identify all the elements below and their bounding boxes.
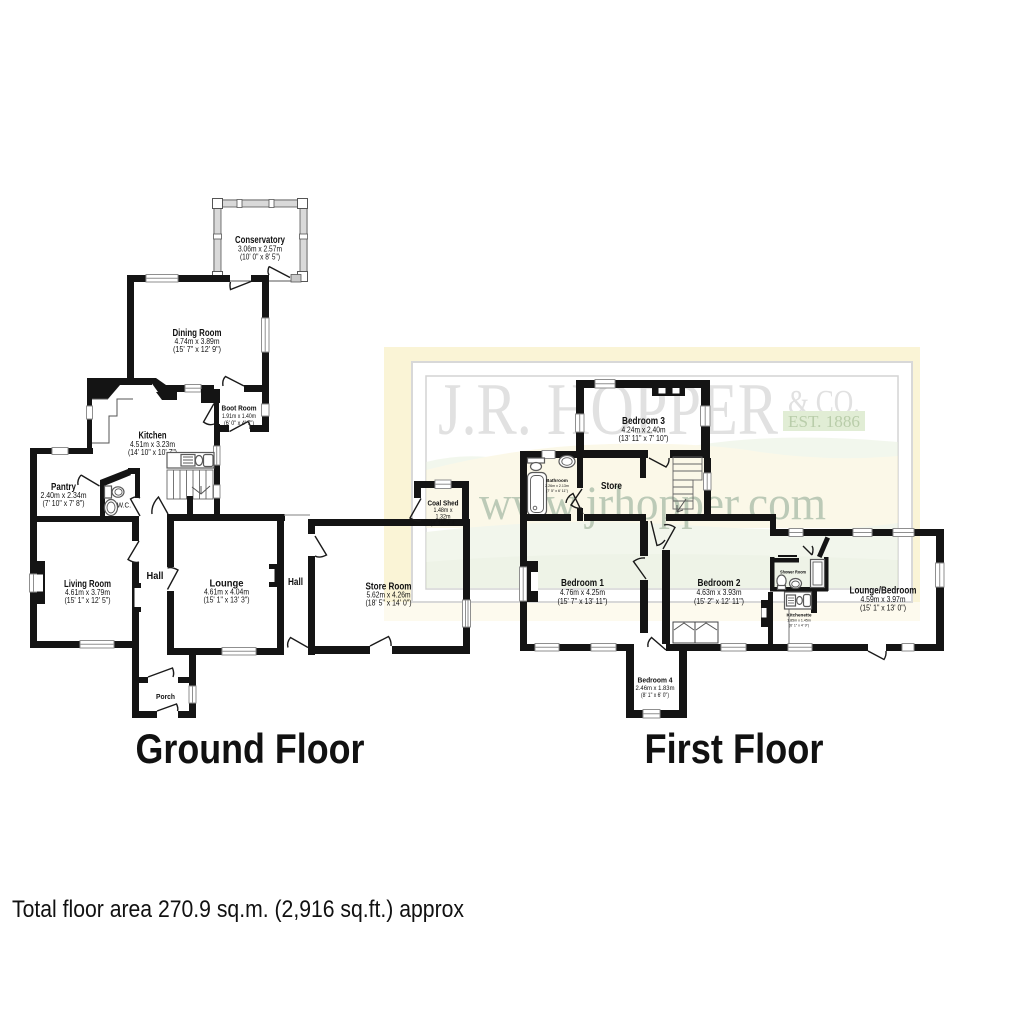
- svg-text:(13' 11" x 7' 10"): (13' 11" x 7' 10"): [619, 433, 669, 443]
- svg-text:(15' 7" x 12' 9"): (15' 7" x 12' 9"): [173, 344, 221, 354]
- svg-text:(6' 1" x 4' 9"): (6' 1" x 4' 9"): [789, 624, 809, 628]
- svg-text:(10' 0" x 8' 5"): (10' 0" x 8' 5"): [240, 252, 280, 262]
- svg-text:1.85m x 1.45m: 1.85m x 1.45m: [787, 619, 811, 623]
- svg-text:Hall: Hall: [147, 571, 164, 582]
- svg-text:(7' 10" x 7' 8"): (7' 10" x 7' 8"): [43, 498, 85, 508]
- svg-text:Kitchenette: Kitchenette: [786, 613, 811, 618]
- svg-text:2.46m x 1.83m: 2.46m x 1.83m: [636, 685, 675, 692]
- svg-text:(15' 7" x 13' 11"): (15' 7" x 13' 11"): [558, 596, 608, 606]
- svg-text:(8' 1" x 6' 0"): (8' 1" x 6' 0"): [641, 692, 669, 699]
- svg-text:Store: Store: [601, 481, 622, 492]
- svg-text:1.91m x 1.40m: 1.91m x 1.40m: [222, 413, 256, 420]
- svg-text:(18' 5" x 14' 0"): (18' 5" x 14' 0"): [366, 598, 412, 608]
- svg-text:(15' 1" x 13' 0"): (15' 1" x 13' 0"): [860, 603, 906, 613]
- svg-text:Shower Room: Shower Room: [780, 570, 806, 575]
- svg-text:First Floor: First Floor: [645, 725, 824, 772]
- svg-text:Ground Floor: Ground Floor: [136, 725, 365, 772]
- svg-text:(15' 1" x 12' 5"): (15' 1" x 12' 5"): [65, 595, 111, 605]
- svg-text:EST. 1886: EST. 1886: [788, 412, 860, 431]
- svg-text:(4' 10" x 4': (4' 10" x 4': [431, 520, 456, 527]
- svg-text:Bedroom 4: Bedroom 4: [638, 676, 674, 685]
- svg-text:(15' 1" x 13' 3"): (15' 1" x 13' 3"): [204, 595, 250, 605]
- svg-text:Bathroom: Bathroom: [546, 478, 568, 483]
- svg-text:(7' 5" x 6' 11"): (7' 5" x 6' 11"): [546, 489, 568, 493]
- svg-text:Boot Room: Boot Room: [222, 404, 257, 413]
- svg-text:Total floor area 270.9 sq.m. (: Total floor area 270.9 sq.m. (2,916 sq.f…: [12, 896, 464, 923]
- svg-text:Porch: Porch: [156, 692, 175, 701]
- svg-text:(15' 2" x 12' 11"): (15' 2" x 12' 11"): [694, 596, 744, 606]
- svg-text:2.26m x 2.13m: 2.26m x 2.13m: [545, 484, 569, 488]
- svg-text:(6' 0" x 4' 7"): (6' 0" x 4' 7"): [224, 420, 254, 427]
- svg-text:W.C.: W.C.: [117, 501, 131, 510]
- svg-text:Hall: Hall: [288, 577, 303, 588]
